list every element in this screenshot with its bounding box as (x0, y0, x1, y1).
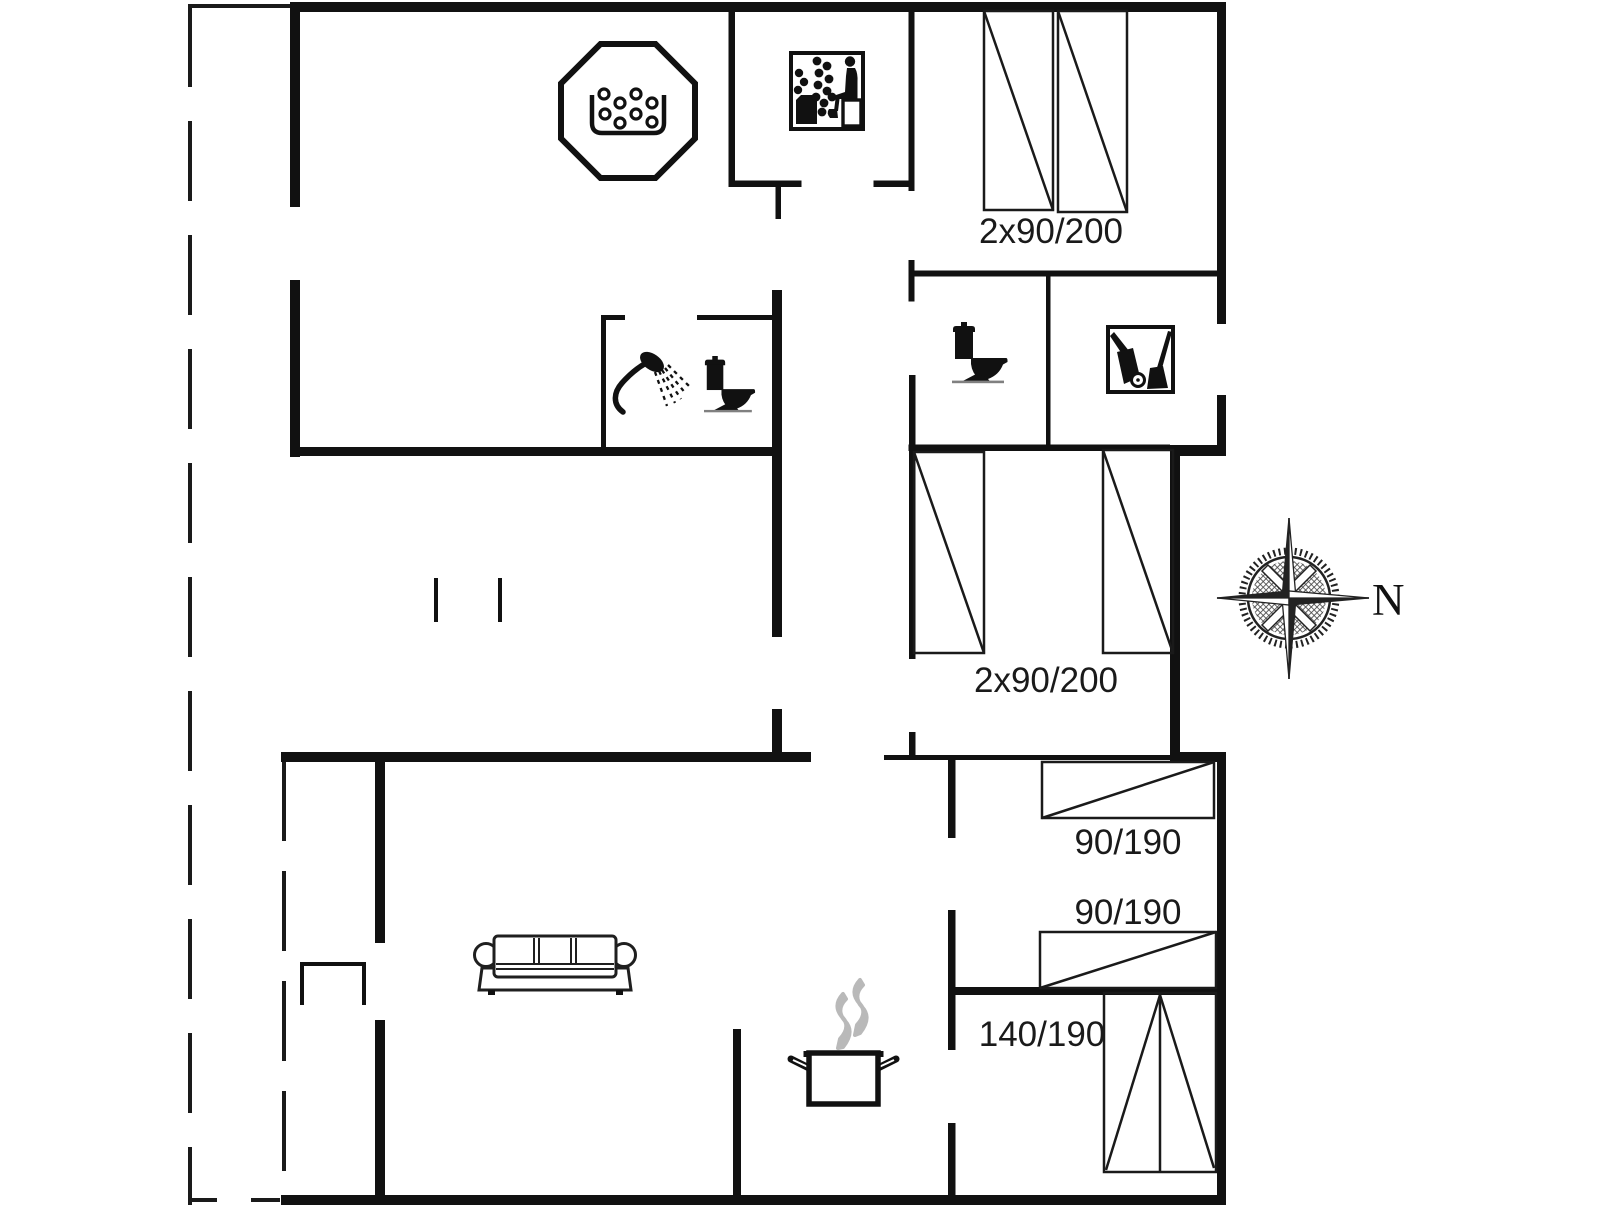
svg-text:140/190: 140/190 (979, 1015, 1106, 1054)
svg-text:90/190: 90/190 (1074, 893, 1181, 932)
svg-text:90/190: 90/190 (1074, 823, 1181, 862)
svg-text:N: N (1372, 575, 1405, 625)
svg-text:2x90/200: 2x90/200 (974, 661, 1118, 700)
svg-text:2x90/200: 2x90/200 (979, 212, 1123, 251)
